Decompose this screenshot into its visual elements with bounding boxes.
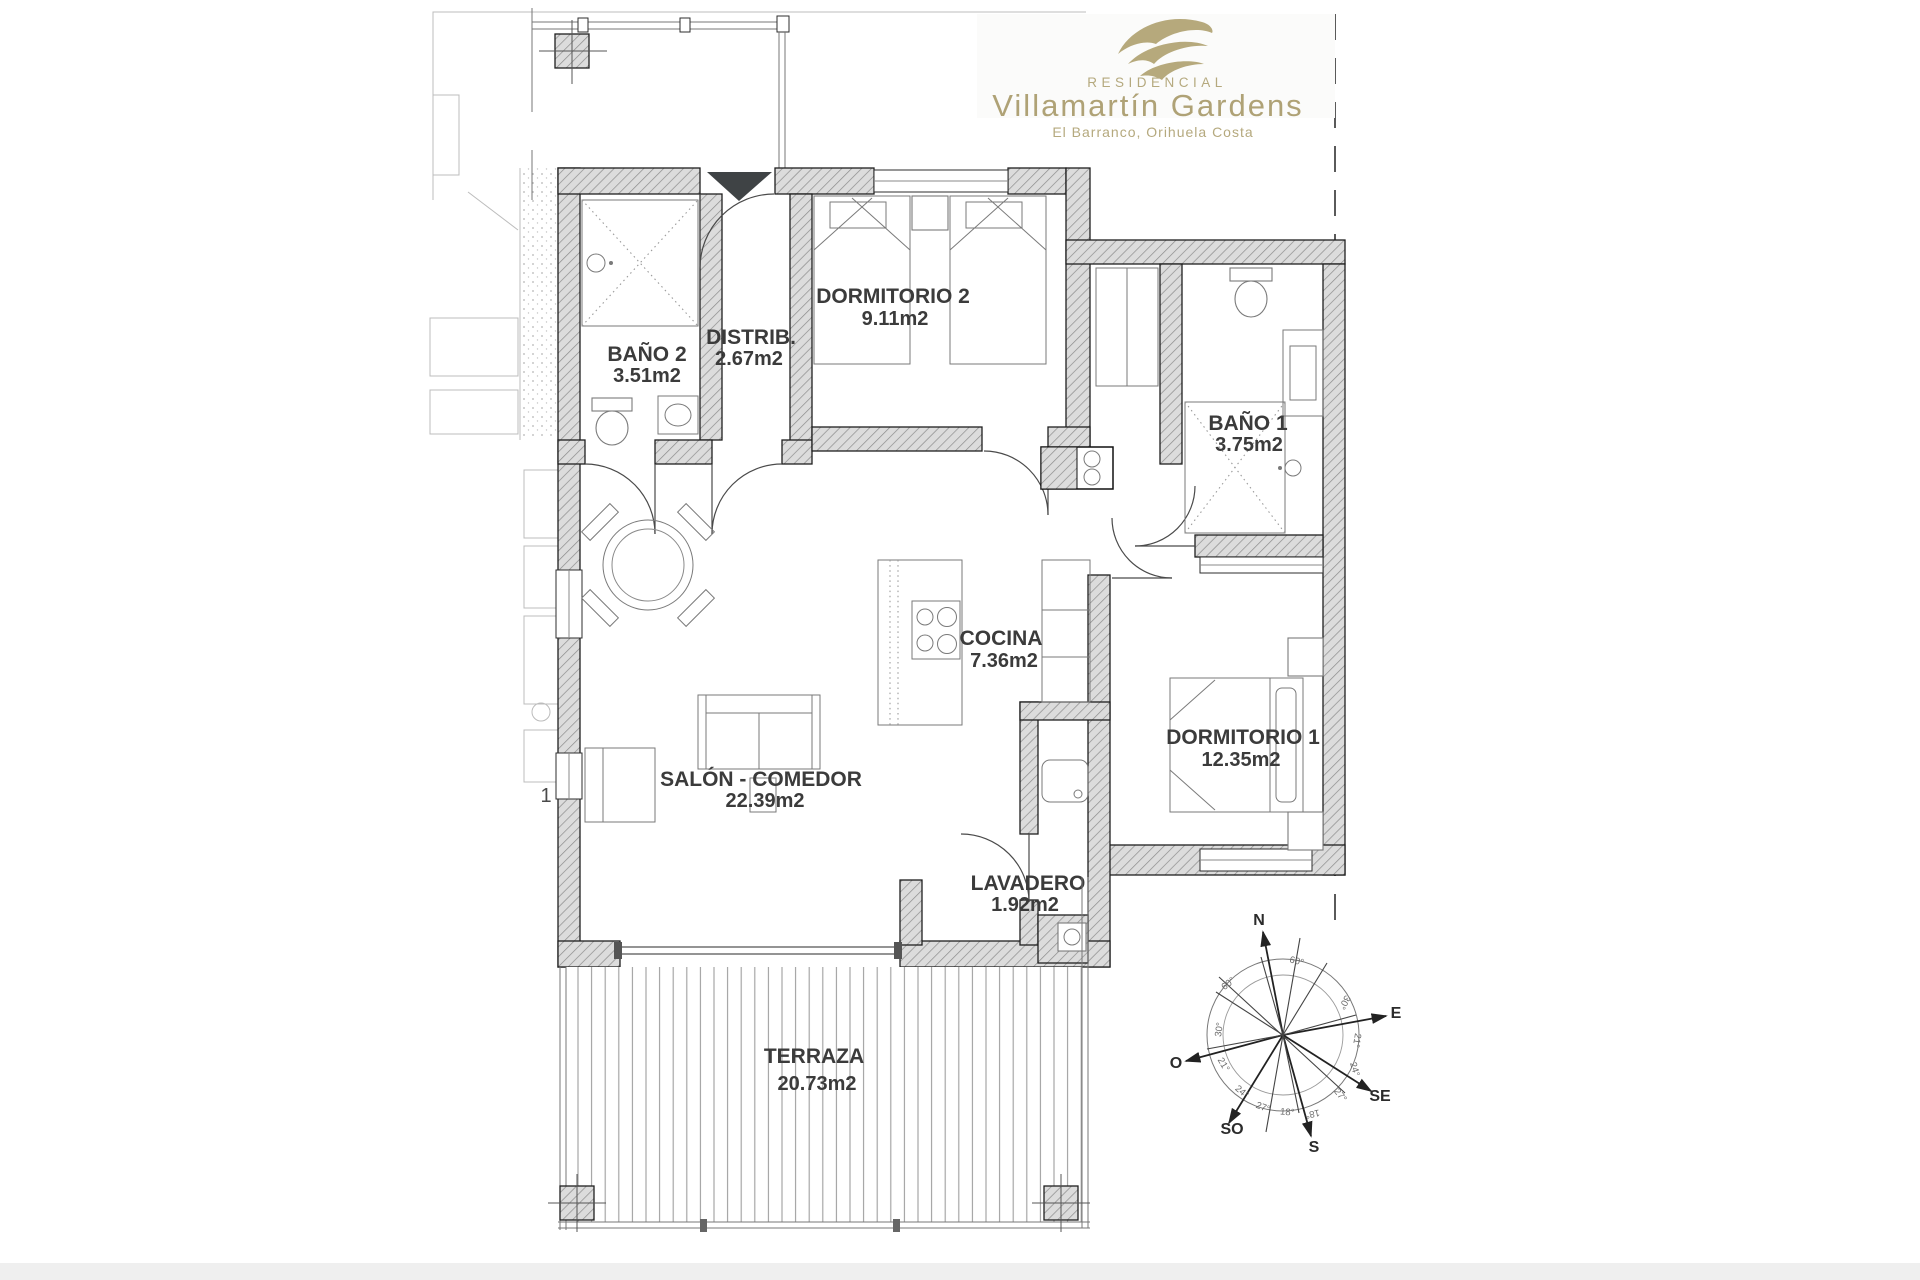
compass-angle: 18° — [1280, 1106, 1295, 1118]
nightstand-icon-2 — [1288, 638, 1323, 676]
room-area-cocina: 7.36m2 — [970, 650, 1038, 672]
room-distribuidor: DISTRIB. 2.67m2 — [706, 326, 796, 370]
nightstand-icon-3 — [1288, 812, 1323, 850]
room-area-salon: 22.39m2 — [726, 790, 805, 812]
brand-logo: RESIDENCIAL Villamartín Gardens El Barra… — [977, 14, 1335, 140]
neighbor-unit-label: 1 — [540, 785, 551, 807]
railing-post — [700, 1219, 707, 1232]
compass-angle: 30° — [1213, 1022, 1226, 1038]
room-label-dormitorio-2: DORMITORIO 2 — [816, 285, 970, 308]
compass-label-e: E — [1391, 1005, 1402, 1022]
window-dormitorio-2-north — [874, 170, 1008, 192]
window-salon-west-2 — [556, 753, 582, 799]
room-area-dormitorio-1: 12.35m2 — [1202, 749, 1281, 771]
compass-label-o: O — [1170, 1055, 1182, 1072]
compass-label-n: N — [1253, 912, 1265, 929]
room-label-terraza: TERRAZA — [764, 1045, 864, 1068]
compass-label-se: SE — [1369, 1088, 1391, 1105]
compass-label-so: SO — [1220, 1121, 1243, 1138]
room-area-distribuidor: 2.67m2 — [715, 348, 783, 370]
room-label-bano-1: BAÑO 1 — [1208, 412, 1288, 435]
nightstand-icon — [912, 196, 948, 230]
room-area-terraza: 20.73m2 — [778, 1073, 857, 1095]
room-label-dormitorio-1: DORMITORIO 1 — [1166, 726, 1320, 749]
railing-post — [893, 1219, 900, 1232]
window-dormitorio-1-south — [1200, 849, 1312, 871]
room-area-dormitorio-2: 9.11m2 — [862, 308, 929, 330]
room-label-bano-2: BAÑO 2 — [607, 343, 686, 366]
footer-strip — [0, 1263, 1920, 1280]
window-salon-west-1 — [556, 570, 582, 638]
room-label-lavadero: LAVADERO — [971, 872, 1086, 895]
compass-label-s: S — [1309, 1139, 1320, 1156]
room-area-bano-1: 3.75m2 — [1215, 434, 1283, 456]
room-label-cocina: COCINA — [960, 627, 1043, 650]
brand-location: El Barranco, Orihuela Costa — [1052, 124, 1253, 140]
room-area-bano-2: 3.51m2 — [613, 365, 681, 387]
room-label-salon: SALÓN - COMEDOR — [660, 767, 862, 791]
floor-plan-canvas: 1 — [0, 0, 1920, 1280]
room-area-lavadero: 1.92m2 — [991, 894, 1059, 916]
brand-name: Villamartín Gardens — [992, 88, 1303, 123]
room-label-distribuidor: DISTRIB. — [706, 326, 796, 349]
kitchen-sink-unit-icon — [1041, 447, 1113, 489]
window-dormitorio-1-north — [1200, 557, 1323, 573]
compass-angle: 21° — [1350, 1032, 1363, 1048]
